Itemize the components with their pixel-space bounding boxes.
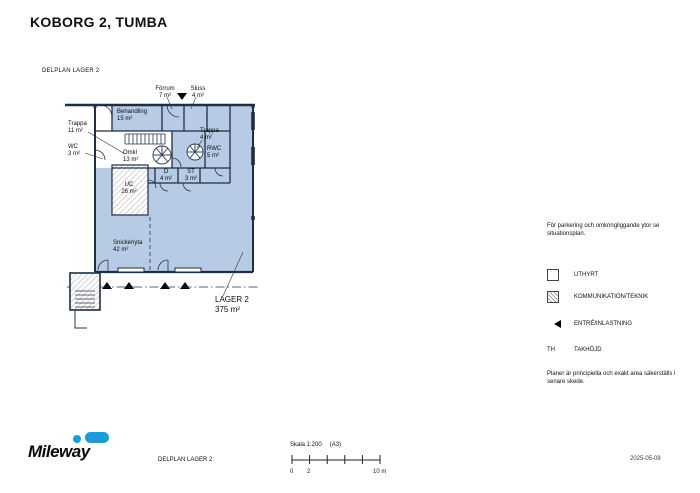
legend-item-takhojd: TH TAKHÖJD <box>547 343 555 357</box>
entrance-arrows <box>102 282 190 289</box>
room-label-behandling: Behandling15 m² <box>117 109 147 123</box>
legend-item-uthyrt: UTHYRT <box>547 268 559 282</box>
parking-note: För parkering och omkringliggande ytor s… <box>547 222 679 239</box>
hatch-swatch-icon <box>547 291 559 303</box>
room-label-d: D4 m² <box>160 169 172 183</box>
room-label-forrum: Förrum7 m² <box>155 86 174 100</box>
plan-caption: DELPLAN LAGER 2 <box>42 68 99 74</box>
floor-plan: Förrum7 m² Sluss4 m² Behandling15 m² Tra… <box>55 80 435 345</box>
svg-text:2: 2 <box>307 469 311 474</box>
main-space-label: LAGER 2375 m² <box>215 295 249 315</box>
legend-panel: För parkering och omkringliggande ytor s… <box>547 222 697 239</box>
winder-stair-icon <box>187 144 203 160</box>
page-title: KOBORG 2, TUMBA <box>30 14 168 30</box>
logo-wordmark: Mileway <box>28 442 90 462</box>
winder-stair-icon <box>153 146 171 164</box>
room-label-trappa-2: Trappa4 m² <box>200 128 219 142</box>
room-label-wc: WC3 m² <box>68 144 80 158</box>
room-label-st: ST3 m² <box>185 169 197 183</box>
legend-item-entre-inlastning: ENTRÉ/INLASTNING <box>547 317 561 331</box>
scale-bar: 0 2 10 m <box>290 448 400 474</box>
tech-shaft <box>70 273 100 328</box>
takhojd-abbrev: TH <box>547 347 555 353</box>
stair-treads-icon <box>125 134 165 144</box>
room-label-sluss: Sluss4 m² <box>191 86 206 100</box>
entrance-arrow-icon <box>177 93 187 100</box>
svg-text:0: 0 <box>290 469 294 474</box>
room-label-rwc: RWC5 m² <box>207 146 221 160</box>
room-label-trappa-1: Trappa11 m² <box>68 121 87 135</box>
disclaimer-note: Planer är principiella och exakt area sä… <box>547 370 687 387</box>
entrance-arrow-icon <box>550 320 561 328</box>
room-label-omkl: Omkl13 m² <box>123 150 138 164</box>
svg-text:10 m: 10 m <box>373 469 386 474</box>
scale-block: Skala 1:200(A3) 0 2 10 m <box>290 442 400 476</box>
legend-item-kommunikation-teknik: KOMMUNIKATION/TEKNIK <box>547 290 559 304</box>
drawing-date: 2025-05-08 <box>630 456 661 462</box>
footer-drawing-label: DELPLAN LAGER 2 <box>158 457 212 463</box>
room-label-snickeriyta: Snickeriyta42 m² <box>113 240 142 254</box>
room-label-uc: UC26 m² <box>121 182 136 196</box>
mileway-logo: Mileway <box>28 430 128 462</box>
uthyrt-swatch-icon <box>547 269 559 281</box>
